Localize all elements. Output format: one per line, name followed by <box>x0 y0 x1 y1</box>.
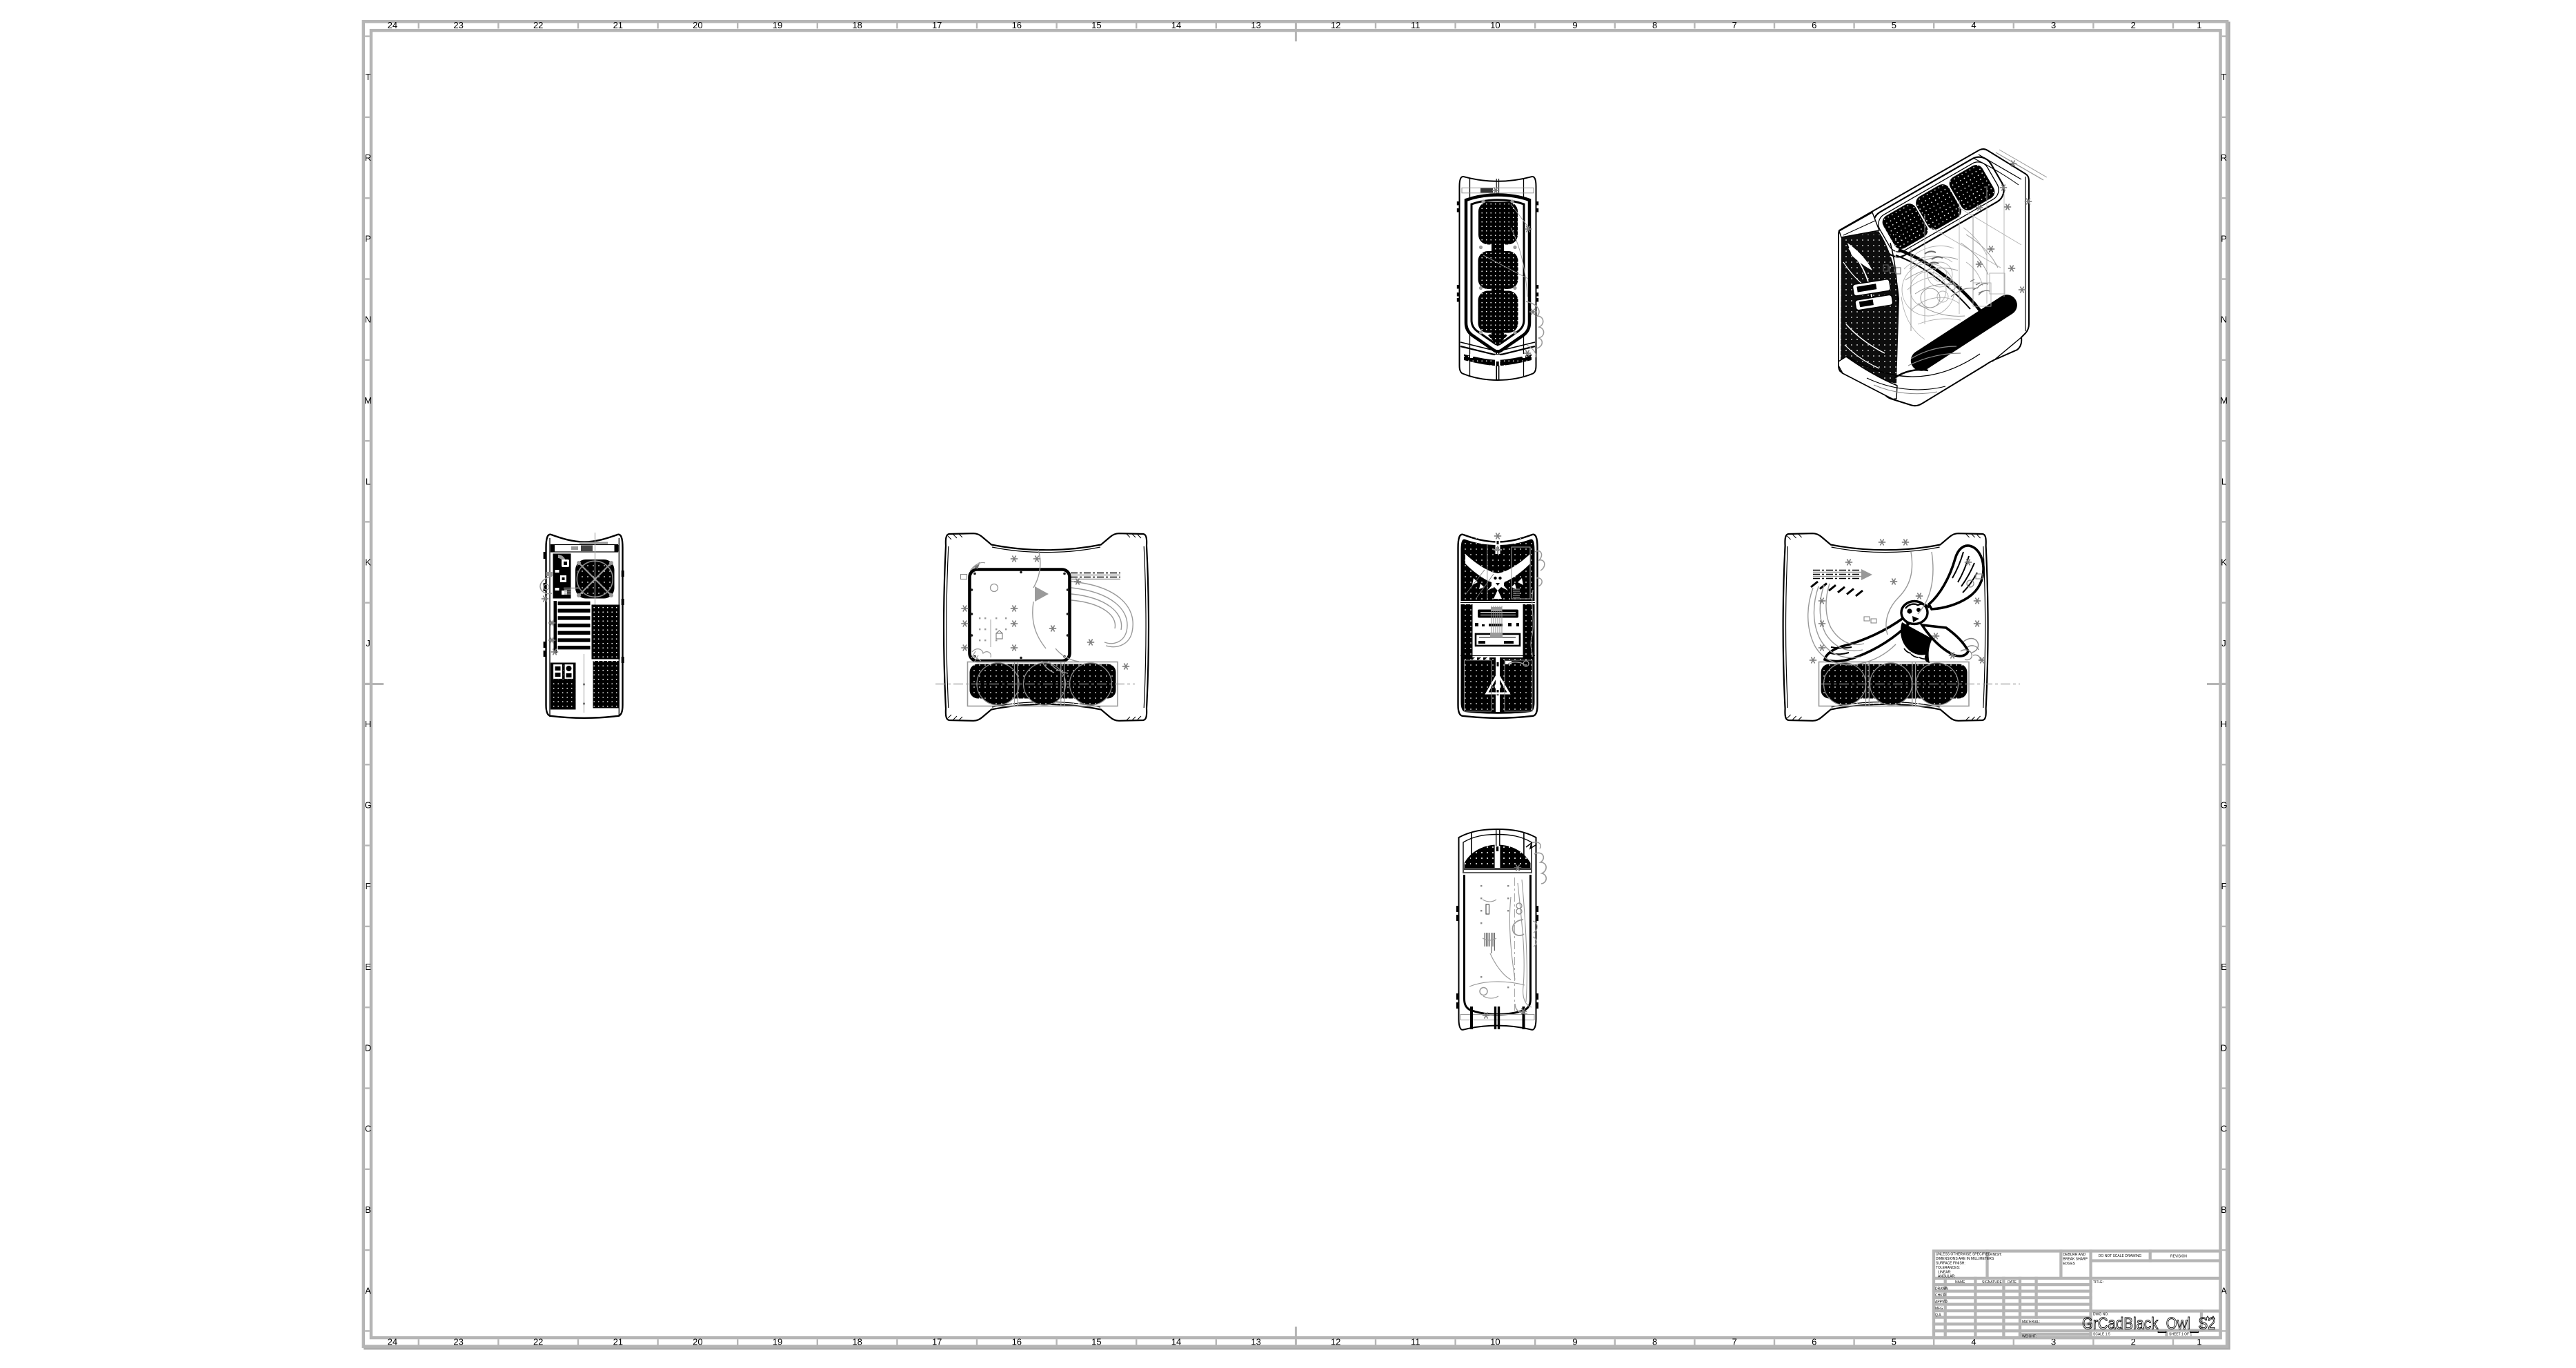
svg-text:UNLESS OTHERWISE SPECIFIED:: UNLESS OTHERWISE SPECIFIED: <box>1936 1253 1992 1257</box>
svg-text:12: 12 <box>1331 1337 1340 1347</box>
svg-text:22: 22 <box>533 20 543 30</box>
svg-text:14: 14 <box>1171 1337 1181 1347</box>
svg-text:J: J <box>2221 638 2226 648</box>
svg-text:18: 18 <box>852 20 862 30</box>
svg-text:23: 23 <box>453 20 463 30</box>
svg-text:SHEET 1 OF 1: SHEET 1 OF 1 <box>2169 1333 2192 1337</box>
svg-text:F: F <box>2221 881 2227 891</box>
svg-text:G: G <box>364 800 371 810</box>
svg-text:N: N <box>365 315 371 325</box>
svg-text:T: T <box>2221 72 2227 82</box>
svg-text:5: 5 <box>1892 1337 1896 1347</box>
svg-text:2: 2 <box>2131 20 2136 30</box>
svg-text:EDGES: EDGES <box>2063 1262 2075 1266</box>
svg-text:6: 6 <box>1812 1337 1816 1347</box>
svg-text:15: 15 <box>1091 20 1101 30</box>
svg-text:T: T <box>366 72 371 82</box>
svg-text:19: 19 <box>773 20 782 30</box>
svg-text:D: D <box>2221 1042 2227 1053</box>
svg-text:K: K <box>2221 557 2227 568</box>
svg-text:P: P <box>365 233 371 244</box>
svg-text:TOLERANCES:: TOLERANCES: <box>1936 1266 1960 1270</box>
svg-text:MFG: MFG <box>1935 1307 1943 1311</box>
svg-text:16: 16 <box>1012 20 1022 30</box>
svg-text:H: H <box>365 719 371 729</box>
svg-text:20: 20 <box>693 20 702 30</box>
svg-text:18: 18 <box>852 1337 862 1347</box>
svg-text:24: 24 <box>388 20 397 30</box>
svg-text:M: M <box>364 395 372 406</box>
svg-text:4: 4 <box>1971 20 1976 30</box>
svg-text:24: 24 <box>388 1337 397 1347</box>
svg-text:5: 5 <box>1892 20 1896 30</box>
svg-text:14: 14 <box>1171 20 1181 30</box>
svg-text:9: 9 <box>1572 20 1577 30</box>
svg-text:GrCadBlack_Owl_S2: GrCadBlack_Owl_S2 <box>2082 1314 2216 1333</box>
svg-text:NAME: NAME <box>1955 1280 1965 1285</box>
svg-text:DEBURR AND: DEBURR AND <box>2063 1253 2085 1257</box>
svg-text:DRAWN: DRAWN <box>1935 1287 1948 1291</box>
svg-text:7: 7 <box>1732 20 1737 30</box>
svg-text:R: R <box>2221 152 2227 163</box>
svg-text:REVISION: REVISION <box>2170 1254 2187 1258</box>
svg-text:Q.A: Q.A <box>1935 1314 1941 1318</box>
svg-text:G: G <box>2220 800 2227 810</box>
svg-text:17: 17 <box>932 20 942 30</box>
svg-text:23: 23 <box>453 1337 463 1347</box>
svg-text:6: 6 <box>1812 20 1816 30</box>
svg-text:E: E <box>2221 962 2227 972</box>
svg-text:L: L <box>366 476 370 486</box>
svg-text:7: 7 <box>1732 1337 1737 1347</box>
svg-text:SCALE 1:5: SCALE 1:5 <box>2093 1333 2110 1337</box>
svg-text:1: 1 <box>2197 20 2201 30</box>
svg-text:ANGULAR:: ANGULAR: <box>1938 1275 1956 1279</box>
svg-text:CHK'D: CHK'D <box>1935 1293 1946 1298</box>
svg-text:K: K <box>365 557 371 568</box>
svg-text:DO NOT SCALE DRAWING: DO NOT SCALE DRAWING <box>2099 1254 2142 1258</box>
svg-text:F: F <box>366 881 371 891</box>
svg-text:WEIGHT:: WEIGHT: <box>2022 1334 2037 1338</box>
svg-text:8: 8 <box>1652 20 1657 30</box>
svg-text:8: 8 <box>1652 1337 1657 1347</box>
svg-text:13: 13 <box>1251 1337 1260 1347</box>
svg-text:B: B <box>365 1205 371 1215</box>
svg-text:BREAK SHARP: BREAK SHARP <box>2063 1258 2088 1262</box>
svg-text:APPV'D: APPV'D <box>1935 1300 1948 1305</box>
svg-text:J: J <box>366 638 370 648</box>
svg-text:E: E <box>365 962 371 972</box>
svg-text:DIMENSIONS ARE IN MILLIMETERS: DIMENSIONS ARE IN MILLIMETERS <box>1936 1257 1994 1261</box>
svg-text:SIGNATURE: SIGNATURE <box>1982 1280 2002 1285</box>
svg-text:B: B <box>2221 1205 2227 1215</box>
svg-text:TITLE:: TITLE: <box>2093 1280 2103 1285</box>
svg-text:SURFACE FINISH:: SURFACE FINISH: <box>1936 1262 1965 1266</box>
svg-text:FINISH:: FINISH: <box>1990 1253 2002 1257</box>
svg-text:M: M <box>2220 395 2228 406</box>
svg-text:16: 16 <box>1012 1337 1022 1347</box>
svg-text:9: 9 <box>1572 1337 1577 1347</box>
svg-text:22: 22 <box>533 1337 543 1347</box>
svg-text:P: P <box>2221 233 2227 244</box>
svg-text:17: 17 <box>932 1337 942 1347</box>
svg-text:H: H <box>2221 719 2227 729</box>
svg-text:DATE: DATE <box>2008 1280 2017 1285</box>
svg-text:C: C <box>365 1124 371 1134</box>
svg-text:N: N <box>2221 315 2227 325</box>
svg-text:3: 3 <box>2051 20 2056 30</box>
svg-text:13: 13 <box>1251 20 1260 30</box>
svg-text:11: 11 <box>1411 1337 1420 1347</box>
svg-text:19: 19 <box>773 1337 782 1347</box>
svg-text:L: L <box>2221 476 2226 486</box>
svg-text:D: D <box>365 1042 371 1053</box>
svg-text:20: 20 <box>693 1337 702 1347</box>
svg-text:10: 10 <box>1490 1337 1500 1347</box>
svg-text:21: 21 <box>613 20 623 30</box>
svg-text:21: 21 <box>613 1337 623 1347</box>
svg-text:MATERIAL:: MATERIAL: <box>2022 1320 2040 1325</box>
svg-text:R: R <box>365 152 371 163</box>
svg-text:C: C <box>2221 1124 2227 1134</box>
svg-text:12: 12 <box>1331 20 1340 30</box>
svg-text:A: A <box>365 1285 371 1296</box>
svg-text:10: 10 <box>1490 20 1500 30</box>
svg-text:11: 11 <box>1411 20 1420 30</box>
svg-text:15: 15 <box>1091 1337 1101 1347</box>
